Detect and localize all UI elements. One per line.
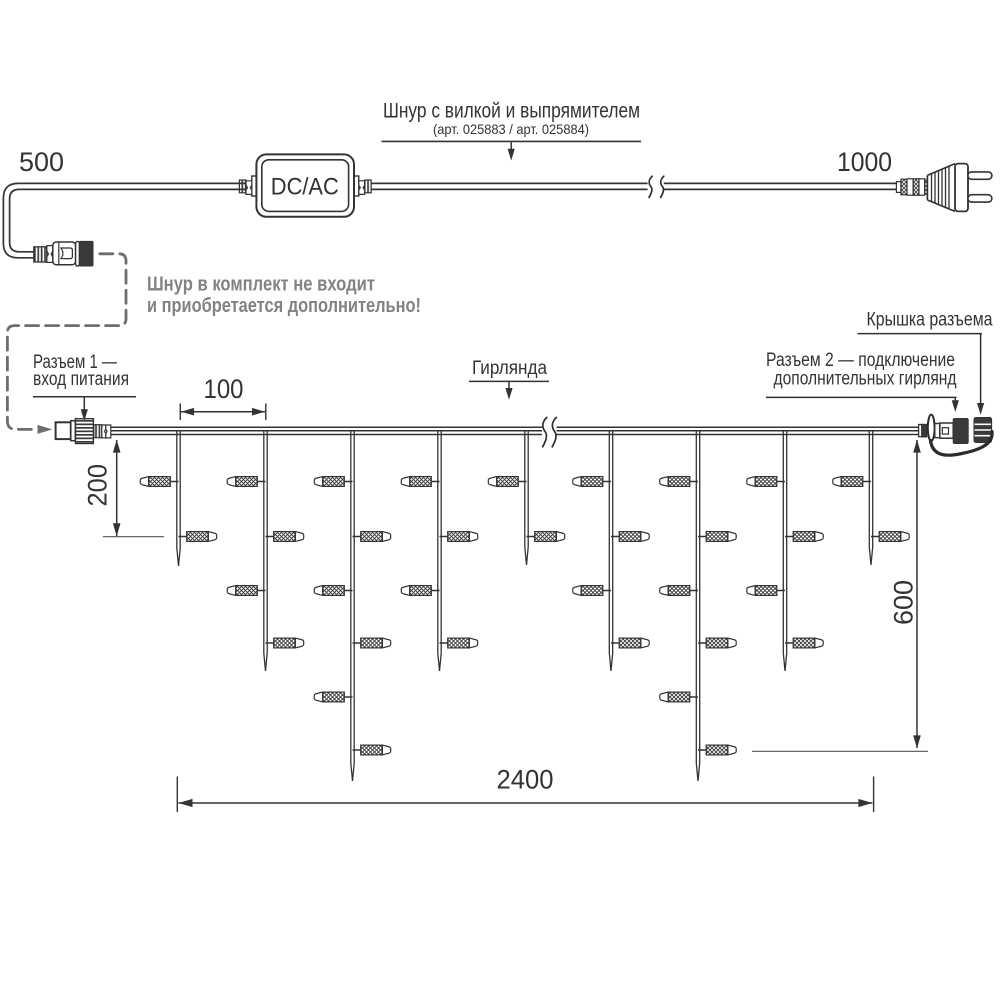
svg-text:1000: 1000	[837, 147, 892, 177]
svg-text:600: 600	[889, 580, 919, 625]
svg-text:500: 500	[19, 147, 64, 177]
svg-text:(арт. 025883 / арт. 025884): (арт. 025883 / арт. 025884)	[433, 122, 589, 137]
svg-text:Гирлянда: Гирлянда	[472, 358, 547, 379]
svg-text:и приобретается дополнительно!: и приобретается дополнительно!	[147, 295, 421, 317]
svg-text:2400: 2400	[497, 765, 554, 795]
svg-text:вход питания: вход питания	[33, 369, 129, 390]
svg-text:Шнур в комплект не входит: Шнур в комплект не входит	[147, 274, 375, 296]
svg-text:100: 100	[204, 374, 244, 404]
svg-text:дополнительных гирлянд: дополнительных гирлянд	[774, 369, 957, 390]
svg-text:Шнур с вилкой и выпрямителем: Шнур с вилкой и выпрямителем	[383, 99, 640, 123]
svg-text:200: 200	[83, 464, 113, 507]
svg-text:Крышка разъема: Крышка разъема	[867, 309, 993, 330]
svg-text:DC/AC: DC/AC	[271, 173, 339, 200]
